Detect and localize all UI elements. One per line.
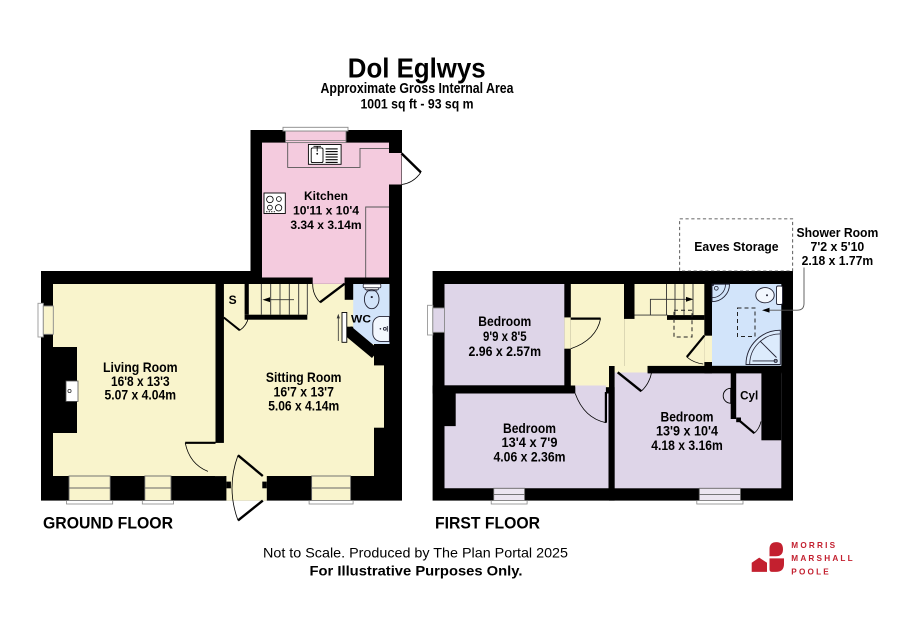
svg-text:Not to Scale. Produced by The: Not to Scale. Produced by The Plan Porta…: [263, 545, 568, 561]
svg-text:S: S: [229, 293, 237, 307]
svg-text:9'9 x 8'5: 9'9 x 8'5: [483, 329, 527, 344]
svg-text:MARSHALL: MARSHALL: [791, 554, 855, 563]
svg-text:Bedroom: Bedroom: [661, 409, 714, 424]
svg-text:Eaves Storage: Eaves Storage: [694, 239, 778, 254]
svg-text:5.07 x 4.04m: 5.07 x 4.04m: [105, 386, 177, 402]
svg-text:2.18 x 1.77m: 2.18 x 1.77m: [802, 253, 874, 268]
svg-text:Shower Room: Shower Room: [797, 225, 879, 240]
svg-text:3.34 x 3.14m: 3.34 x 3.14m: [290, 218, 361, 232]
svg-text:4.06 x 2.36m: 4.06 x 2.36m: [494, 450, 566, 465]
svg-text:13'4 x 7'9: 13'4 x 7'9: [502, 435, 558, 450]
svg-text:Bedroom: Bedroom: [503, 421, 556, 436]
svg-text:POOLE: POOLE: [791, 568, 831, 577]
svg-text:FIRST FLOOR: FIRST FLOOR: [435, 515, 540, 533]
svg-text:13'9 x 10'4: 13'9 x 10'4: [656, 424, 718, 439]
svg-text:4.18 x 3.16m: 4.18 x 3.16m: [651, 438, 723, 453]
svg-text:7'2 x 5'10: 7'2 x 5'10: [811, 239, 865, 254]
svg-text:MORRIS: MORRIS: [791, 541, 837, 550]
svg-text:For Illustrative Purposes Only: For Illustrative Purposes Only.: [310, 563, 523, 579]
svg-text:WC: WC: [351, 314, 371, 326]
svg-text:2.96 x 2.57m: 2.96 x 2.57m: [469, 344, 542, 359]
svg-text:Kitchen: Kitchen: [304, 189, 348, 203]
svg-text:Cyl: Cyl: [740, 388, 758, 402]
svg-text:Approximate Gross Internal Are: Approximate Gross Internal Area: [321, 80, 515, 97]
svg-text:Bedroom: Bedroom: [478, 314, 531, 329]
svg-text:1001 sq ft - 93 sq m: 1001 sq ft - 93 sq m: [361, 96, 474, 111]
svg-text:GROUND FLOOR: GROUND FLOOR: [43, 515, 173, 533]
svg-text:5.06 x 4.14m: 5.06 x 4.14m: [268, 398, 339, 414]
svg-text:10'11 x 10'4: 10'11 x 10'4: [293, 203, 359, 217]
svg-text:Dol Eglwys: Dol Eglwys: [348, 53, 486, 84]
